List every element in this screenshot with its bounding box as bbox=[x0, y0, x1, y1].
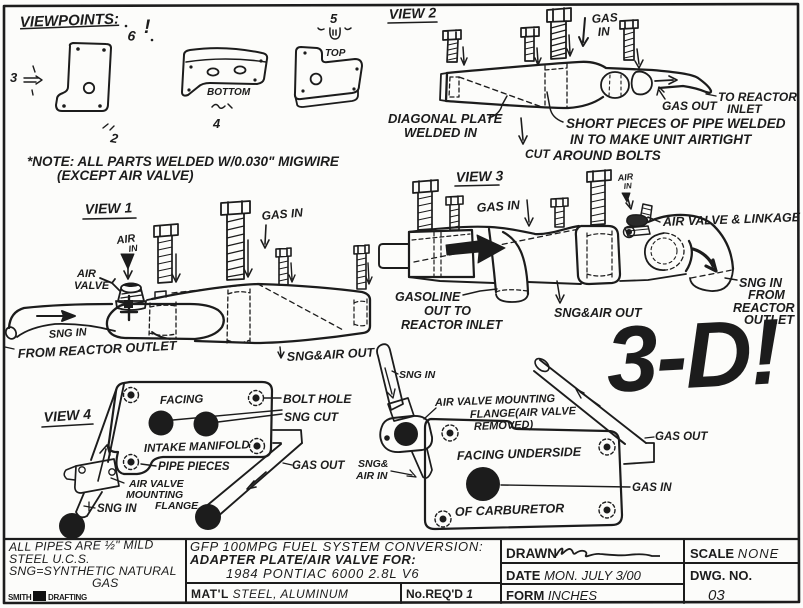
svg-text:GAS OUT: GAS OUT bbox=[655, 431, 708, 443]
svg-text:DRAWN: DRAWN bbox=[506, 546, 557, 561]
svg-text:MAT'L STEEL, ALUMINUM: MAT'L STEEL, ALUMINUM bbox=[191, 587, 348, 601]
svg-text:VIEW 2: VIEW 2 bbox=[389, 4, 437, 22]
svg-text:VIEW 1: VIEW 1 bbox=[85, 199, 133, 217]
svg-text:WELDED IN: WELDED IN bbox=[404, 125, 478, 140]
svg-text:IN: IN bbox=[597, 24, 610, 39]
svg-text:AIR: AIR bbox=[76, 268, 96, 280]
svg-text:03: 03 bbox=[708, 587, 725, 604]
svg-text:3: 3 bbox=[10, 70, 18, 85]
svg-text:IN: IN bbox=[623, 181, 632, 191]
svg-text:FLANGE: FLANGE bbox=[155, 500, 199, 512]
svg-text:4: 4 bbox=[212, 116, 221, 131]
svg-text:TOP: TOP bbox=[325, 48, 346, 59]
svg-text:No.REQ'D 1: No.REQ'D 1 bbox=[406, 587, 473, 601]
svg-text:SCALE NONE: SCALE NONE bbox=[690, 546, 779, 561]
svg-text:GAS: GAS bbox=[92, 576, 119, 590]
svg-text:*NOTE: ALL PARTS WELDED W/0.03: *NOTE: ALL PARTS WELDED W/0.030" MIGWIRE bbox=[27, 154, 340, 169]
svg-text:DATE MON. JULY 3/00: DATE MON. JULY 3/00 bbox=[506, 568, 642, 583]
svg-text:VALVE: VALVE bbox=[74, 280, 110, 292]
svg-text:INLET: INLET bbox=[727, 102, 763, 116]
svg-text:DWG. NO.: DWG. NO. bbox=[690, 568, 752, 583]
svg-text:OUT TO: OUT TO bbox=[424, 304, 471, 318]
svg-text:VIEW 3: VIEW 3 bbox=[456, 167, 504, 185]
svg-text:SNG CUT: SNG CUT bbox=[284, 410, 340, 424]
svg-text:3-D!: 3-D! bbox=[604, 299, 783, 412]
svg-text:BOTTOM: BOTTOM bbox=[207, 87, 251, 98]
svg-text:VIEWPOINTS:: VIEWPOINTS: bbox=[20, 11, 120, 31]
svg-text:GAS IN: GAS IN bbox=[632, 482, 672, 494]
svg-text:5: 5 bbox=[330, 11, 338, 26]
svg-text:PIPE PIECES: PIPE PIECES bbox=[158, 461, 230, 473]
svg-text:AROUND BOLTS: AROUND BOLTS bbox=[552, 148, 661, 163]
svg-text:FORM INCHES: FORM INCHES bbox=[506, 588, 597, 603]
svg-text:SNG IN: SNG IN bbox=[97, 503, 137, 515]
svg-text:SHORT PIECES OF PIPE WELDED: SHORT PIECES OF PIPE WELDED bbox=[566, 116, 786, 131]
svg-text:GASOLINE: GASOLINE bbox=[395, 290, 461, 304]
svg-text:GAS OUT: GAS OUT bbox=[292, 460, 345, 472]
svg-text:REACTOR INLET: REACTOR INLET bbox=[401, 318, 504, 332]
svg-text:GAS OUT: GAS OUT bbox=[662, 99, 718, 113]
svg-text:ADAPTER PLATE/AIR VALVE FOR:: ADAPTER PLATE/AIR VALVE FOR: bbox=[189, 552, 416, 567]
svg-text:CUT: CUT bbox=[525, 147, 551, 161]
svg-text:AIR IN: AIR IN bbox=[355, 470, 388, 482]
svg-text:DIAGONAL PLATE: DIAGONAL PLATE bbox=[388, 111, 503, 126]
svg-text:IN TO MAKE UNIT AIRTIGHT: IN TO MAKE UNIT AIRTIGHT bbox=[570, 132, 753, 147]
svg-text:DRAFTING: DRAFTING bbox=[48, 593, 87, 602]
svg-text:SNG&: SNG& bbox=[358, 458, 388, 470]
svg-text:BOLT HOLE: BOLT HOLE bbox=[283, 392, 352, 406]
svg-text:VIEW 4: VIEW 4 bbox=[43, 406, 92, 425]
svg-text:SMITH: SMITH bbox=[8, 593, 32, 602]
svg-text:FACING: FACING bbox=[160, 393, 204, 407]
svg-text:1984 PONTIAC 6000 2.8L V6: 1984 PONTIAC 6000 2.8L V6 bbox=[226, 566, 420, 581]
svg-text:(EXCEPT AIR VALVE): (EXCEPT AIR VALVE) bbox=[57, 168, 194, 183]
svg-text:!: ! bbox=[144, 17, 150, 38]
svg-text:SNG IN: SNG IN bbox=[399, 369, 436, 381]
